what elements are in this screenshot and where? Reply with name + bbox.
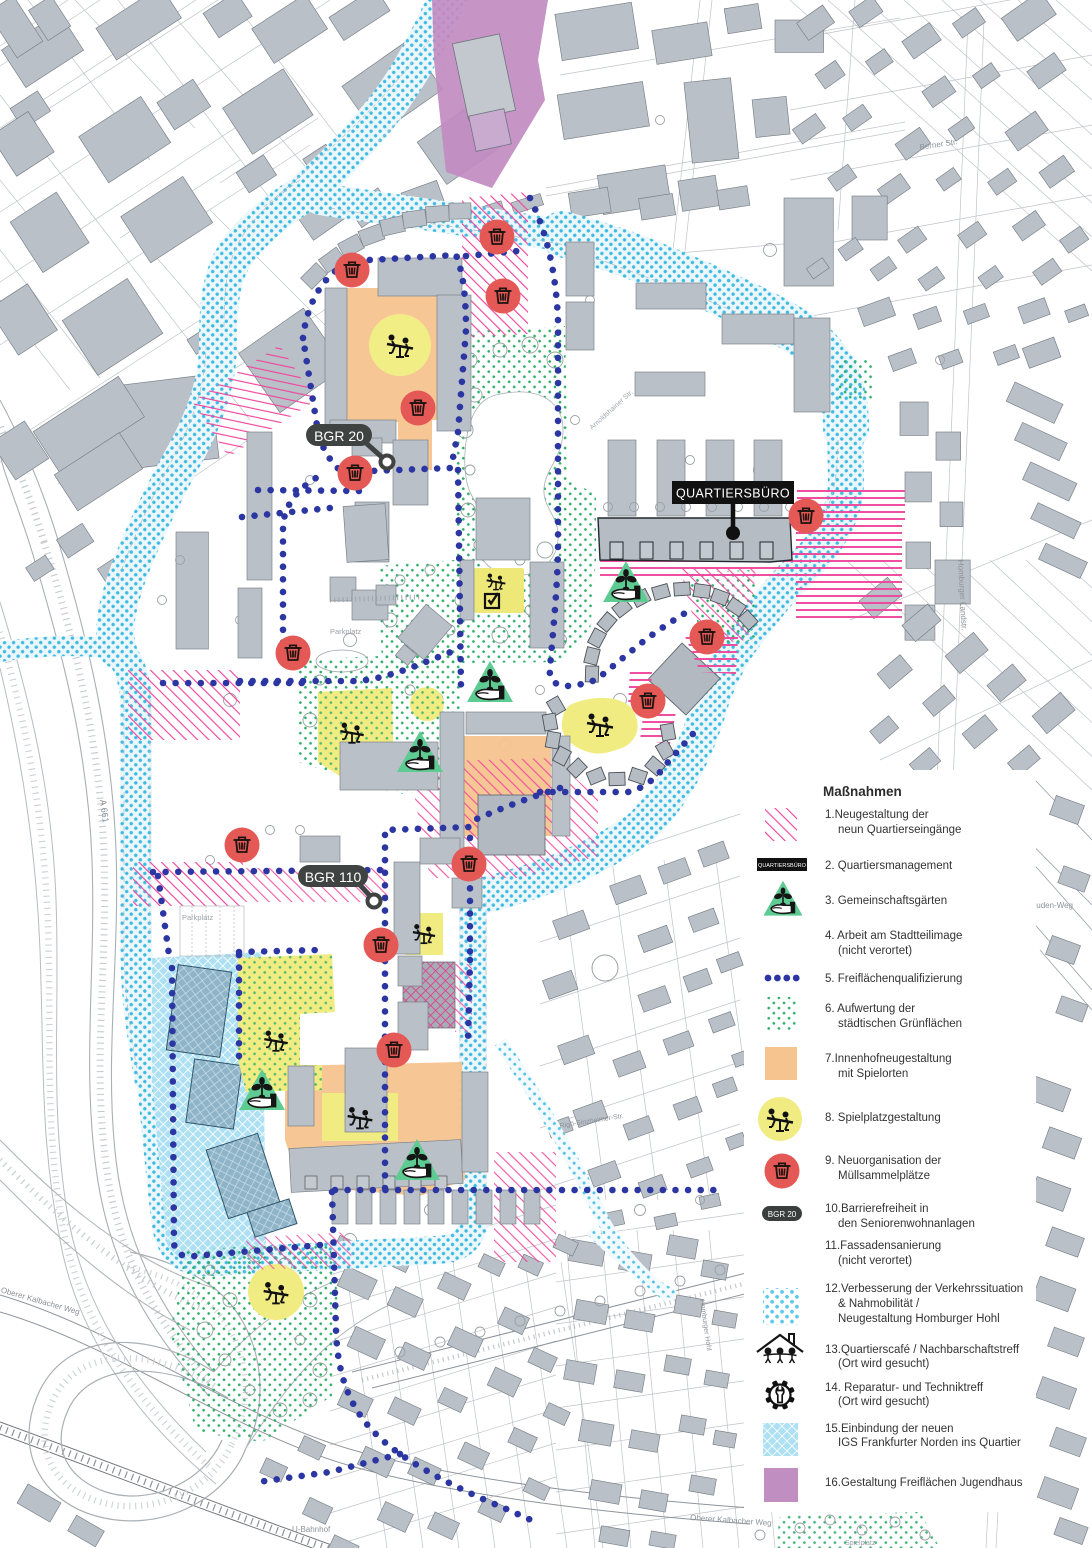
svg-text:1.Neugestaltung der: 1.Neugestaltung der xyxy=(825,809,929,821)
svg-text:4. Arbeit am Stadtteilimage: 4. Arbeit am Stadtteilimage xyxy=(825,930,962,942)
svg-text:10.Barrierefreiheit in: 10.Barrierefreiheit in xyxy=(825,1203,929,1215)
svg-text:Parkplatz: Parkplatz xyxy=(182,913,214,922)
svg-text:12.Verbesserung der Verkehrssi: 12.Verbesserung der Verkehrssituation xyxy=(825,1283,1023,1295)
svg-text:2. Quartiersmanagement: 2. Quartiersmanagement xyxy=(825,860,953,872)
svg-text:den Seniorenwohnanlagen: den Seniorenwohnanlagen xyxy=(838,1218,975,1230)
svg-text:Neugestaltung Homburger Hohl: Neugestaltung Homburger Hohl xyxy=(838,1313,1000,1325)
svg-text:(Ort wird gesucht): (Ort wird gesucht) xyxy=(838,1358,930,1370)
svg-text:13.Quartierscafé / Nachbarscha: 13.Quartierscafé / Nachbarschaftstreff xyxy=(825,1344,1020,1356)
svg-text:3. Gemeinschaftsgärten: 3. Gemeinschaftsgärten xyxy=(825,895,947,907)
svg-text:16.Gestaltung Freiflächen Juge: 16.Gestaltung Freiflächen Jugendhaus xyxy=(825,1477,1023,1489)
svg-text:städtischen Grünflächen: städtischen Grünflächen xyxy=(838,1018,962,1030)
svg-text:Müllsammelplätze: Müllsammelplätze xyxy=(838,1170,930,1182)
svg-text:mit Spielorten: mit Spielorten xyxy=(838,1068,908,1080)
svg-text:9. Neuorganisation der: 9. Neuorganisation der xyxy=(825,1155,942,1167)
svg-text:(nicht verortet): (nicht verortet) xyxy=(838,1255,912,1267)
svg-text:BGR 20: BGR 20 xyxy=(314,428,364,444)
svg-text:7.Innenhofneugestaltung: 7.Innenhofneugestaltung xyxy=(825,1053,952,1065)
svg-text:(Ort wird gesucht): (Ort wird gesucht) xyxy=(838,1396,930,1408)
svg-text:Maßnahmen: Maßnahmen xyxy=(823,784,902,799)
svg-text:6. Aufwertung der: 6. Aufwertung der xyxy=(825,1003,915,1015)
svg-text:& Nahmobilität /: & Nahmobilität / xyxy=(838,1298,920,1310)
svg-text:8. Spielplatzgestaltung: 8. Spielplatzgestaltung xyxy=(825,1112,941,1124)
svg-text:15.Einbindung der neuen: 15.Einbindung der neuen xyxy=(825,1423,954,1435)
svg-text:14. Reparatur- und Techniktref: 14. Reparatur- und Techniktreff xyxy=(825,1382,984,1394)
svg-text:BGR 20: BGR 20 xyxy=(768,1210,797,1219)
svg-text:QUARTIERSBÜRO: QUARTIERSBÜRO xyxy=(758,862,807,869)
svg-text:Spielplatz: Spielplatz xyxy=(845,1540,876,1547)
svg-text:5. Freiflächenqualifizierung: 5. Freiflächenqualifizierung xyxy=(825,973,962,985)
svg-text:IGS Frankfurter Norden ins Qua: IGS Frankfurter Norden ins Quartier xyxy=(838,1437,1021,1449)
svg-text:neun Quartierseingänge: neun Quartierseingänge xyxy=(838,824,961,836)
svg-text:Parkplatz: Parkplatz xyxy=(330,627,362,636)
svg-text:11.Fassadensanierung: 11.Fassadensanierung xyxy=(825,1240,941,1252)
svg-text:U-Bahnhof: U-Bahnhof xyxy=(292,1525,331,1534)
svg-text:QUARTIERSBÜRO: QUARTIERSBÜRO xyxy=(676,487,790,501)
svg-text:BGR 110: BGR 110 xyxy=(305,869,362,885)
svg-text:(nicht verortet): (nicht verortet) xyxy=(838,945,912,957)
